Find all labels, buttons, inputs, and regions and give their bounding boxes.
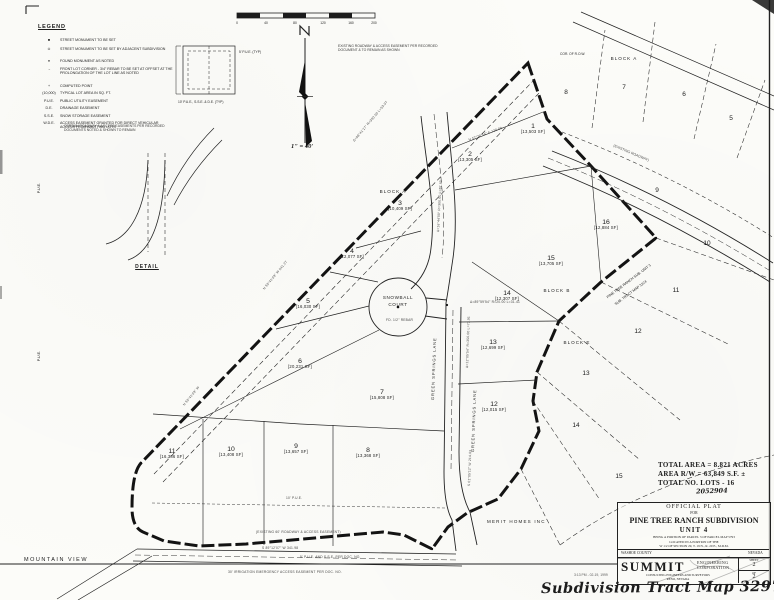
legend-symbol: D.E. (40, 106, 58, 110)
lot-label: 11[16,386 SF] (160, 448, 184, 460)
block-label: BLOCK E (564, 340, 591, 345)
lot-area: [13,305 SF] (458, 158, 482, 163)
scale-tick-label: 120 (320, 21, 326, 25)
lot-label: 16[12,884 SF] (594, 219, 618, 231)
legend-symbol: W.D.E. (40, 121, 58, 125)
scale-note: 1" = 40' (291, 143, 313, 150)
bearing-annotation: S 89°12'07" W 341.98 (262, 546, 298, 550)
lot-label: 7[15,808 SF] (370, 389, 394, 401)
legend-text: STREET MONUMENT TO BE SET BY ADJACENT SU… (60, 47, 174, 51)
lot-area: [13,368 SF] (356, 454, 380, 459)
title-desc: BEING A PORTION OF PARCEL 3 OF PARCEL MA… (653, 535, 735, 539)
area-rw-line: AREA R/W = 63,849 S.F. ± (658, 470, 745, 478)
lot-area: [12,699 SF] (481, 346, 505, 351)
adjacent-lot-number: 5 (729, 115, 733, 122)
adjacent-lot-number: 9 (655, 187, 659, 194)
scale-tick-label: 80 (293, 21, 297, 25)
scale-tick-label: 160 (348, 21, 354, 25)
legend-text: PUBLIC UTILITY EASEMENT (60, 99, 174, 103)
lot-label: 15[13,705 SF] (539, 255, 563, 267)
adjacent-lot-number: 8 (564, 89, 568, 96)
lot-label: 3[10,409 SF] (388, 200, 412, 212)
typical-easement-label: 10' P.U.E., S.S.E. & D.E. (TYP) (178, 100, 223, 104)
legend-symbol: ● (40, 59, 58, 63)
lot-area: [12,884 SF] (594, 226, 618, 231)
unit-label: UNIT 4 (680, 526, 709, 534)
monument-annotation: FD. 1/2" REBAR (386, 318, 413, 322)
scale-tick-label: 200 (371, 21, 377, 25)
lot-area: [13,705 SF] (539, 262, 563, 267)
pue-label: P.U.E. (37, 351, 41, 361)
legend-text: COMPUTED POINT (60, 84, 174, 88)
subdivision-name: PINE TREE RANCH SUBDIVISION (630, 516, 759, 525)
lot-area: [13,408 SF] (219, 453, 243, 458)
lot-area: [15,808 SF] (370, 396, 394, 401)
monument-note: CERTAIN ROADWAY & ACCESS EASEMENTS PER R… (64, 124, 186, 133)
legend-text: SNOW STORAGE EASEMENT (60, 114, 174, 118)
plat-map-sheet: LEGEND ■ STREET MONUMENT TO BE SET ⊙ STR… (0, 0, 774, 600)
scale-tick-label: 40 (264, 21, 268, 25)
lot-area: [13,657 SF] (284, 450, 308, 455)
state-label: NEVADA (748, 551, 763, 555)
adjacent-lot-number: 10 (703, 240, 710, 247)
street-name-snowball: SNOWBALL (383, 295, 413, 300)
lot-label: 2[13,305 SF] (458, 151, 482, 163)
legend-symbol: ■ (40, 38, 58, 42)
adjacent-lot-number: 12 (634, 328, 641, 335)
legend-text: DRAINAGE EASEMENT (60, 106, 174, 110)
for-label: FOR (690, 511, 697, 515)
lot-label: 5[16,030 SF] (296, 298, 320, 310)
fax-stamp: 3:13 PM - 02-19, 1999 (574, 573, 608, 577)
total-area-line: TOTAL AREA = 8.821 ACRES (658, 461, 758, 469)
title-desc: W 1/2 OF SECTION 29, T. 19 N., R. 20 E.,… (659, 544, 728, 548)
adjacent-lot-number: 13 (582, 370, 589, 377)
lot-area: [12,015 SF] (482, 408, 506, 413)
title-desc: LOCATED IN A PORTION OF THE (669, 540, 718, 544)
legend-text: STREET MONUMENT TO BE SET (60, 38, 174, 42)
lot-area: [16,030 SF] (296, 305, 320, 310)
sheet-number: 2 (753, 562, 756, 568)
adjacent-lot-number: 6 (682, 91, 686, 98)
adjacent-lot-number: 14 (572, 422, 579, 429)
block-label: BLOCK A (380, 189, 407, 194)
legend-title: LEGEND (38, 24, 66, 30)
easement-annotation: 10' P.U.E. (286, 496, 302, 500)
pue-label: P.U.E. (37, 183, 41, 193)
curve-annotation: Δ=89°59'54" R=20.00 L=31.41 (470, 300, 520, 304)
lot-area: [16,386 SF] (160, 455, 184, 460)
lot-area: [13,503 SF] (521, 130, 545, 135)
legend-symbol: ⊙ (40, 47, 58, 51)
lot-label: 4[12,077 SF] (340, 248, 364, 260)
legend-text: TYPICAL LOT AREA IN SQ. FT. (60, 91, 174, 95)
lot-label: 6[20,231 SF] (288, 358, 312, 370)
street-name-snowball: COURT (388, 302, 407, 307)
firm-name-line: CORPORATION (697, 565, 729, 570)
legend-symbol: P.U.E. (40, 99, 58, 103)
block-label: BLOCK B (544, 288, 571, 293)
lot-label: 1[13,503 SF] (521, 123, 545, 135)
easement-annotation: (EXISTING 60' ROADWAY & ACCESS EASEMENT) (256, 530, 341, 534)
owner-label: MERIT HOMES INC (487, 519, 546, 524)
handwritten-doc-number: 2052904 (696, 486, 728, 495)
firm-tagline: CONSULTING ENGINEERS AND SURVEYORS (646, 573, 710, 577)
legend-symbol: (10,000) (40, 91, 58, 95)
legend-text: FRONT LOT CORNER - 3/4" REBAR TO BE SET … (60, 67, 174, 76)
detail-label: DETAIL (135, 264, 159, 270)
area-label-mountain-view: MOUNTAIN VIEW (24, 557, 88, 563)
lot-label: 9[13,657 SF] (284, 443, 308, 455)
easement-annotation: 30' IRRIGATION EMERGENCY ACCESS EASEMENT… (228, 570, 342, 574)
legend-symbol: + (40, 84, 58, 88)
block-label: BLOCK A (611, 56, 638, 61)
typical-easement-label: 5' P.U.E. (TYP) (239, 50, 261, 54)
county-label: WASHOE COUNTY (621, 551, 652, 555)
adjacent-lot-number: 15 (615, 473, 622, 480)
official-plat-label: OFFICIAL PLAT (666, 504, 722, 510)
lot-area: [20,231 SF] (288, 365, 312, 370)
lot-label: 13[12,699 SF] (481, 339, 505, 351)
legend-text: FOUND MONUMENT AS NOTED (60, 59, 174, 63)
lot-label: 8[13,368 SF] (356, 447, 380, 459)
lot-label: 12[12,015 SF] (482, 401, 506, 413)
legend-symbol: → (40, 67, 58, 71)
handwritten-map-title: Subdivision Tract Map 3297A (541, 578, 774, 597)
lot-area: [10,409 SF] (388, 207, 412, 212)
corner-row-note: COR. OF R.O.W. (560, 52, 585, 56)
existing-easement-note: EXISTING ROADWAY & ACCESS EASEMENT PER R… (338, 44, 450, 53)
easement-annotation: 5' P.U.E. AND S.S.E. PER DOC. NO. (300, 555, 361, 559)
legend-symbol: S.S.E. (40, 114, 58, 118)
lot-label: 10[13,408 SF] (219, 446, 243, 458)
adjacent-lot-number: 11 (673, 287, 680, 294)
adjacent-lot-number: 7 (622, 84, 626, 91)
lot-area: [12,077 SF] (340, 255, 364, 260)
scale-tick-label: 0 (236, 21, 238, 25)
